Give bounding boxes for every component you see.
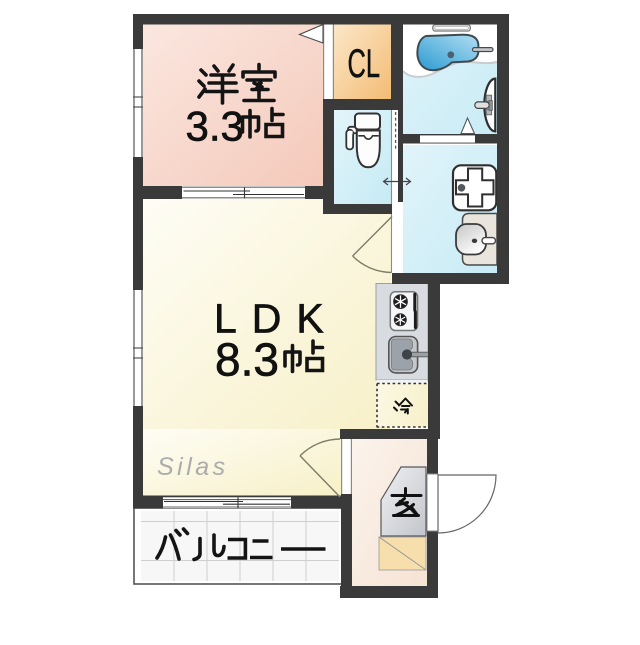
svg-text:Silas: Silas [157,453,229,481]
svg-text:3.3: 3.3 [186,103,244,150]
svg-text:CL: CL [348,42,381,86]
svg-text:8.3: 8.3 [215,334,279,386]
